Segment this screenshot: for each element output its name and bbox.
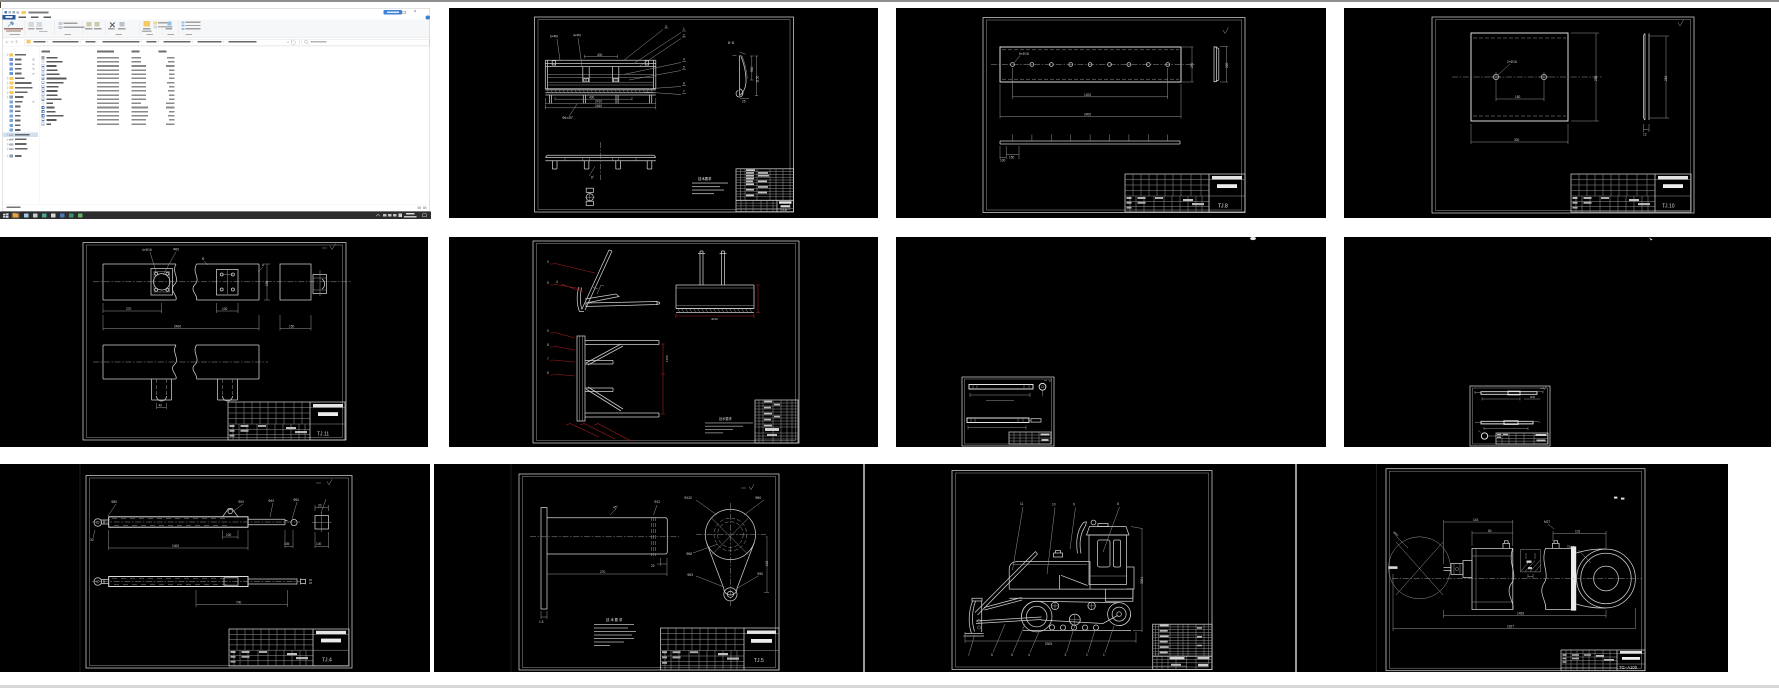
svg-text:3: 3 [547,260,549,264]
svg-text:1150: 1150 [756,76,760,83]
svg-text:1: 1 [683,27,685,31]
svg-text:1000: 1000 [172,544,179,548]
svg-text:Φ50: Φ50 [1392,530,1399,537]
svg-text:20: 20 [318,504,322,508]
svg-text:84: 84 [1488,529,1492,533]
svg-text:Φ40: Φ40 [1530,395,1536,399]
svg-text:2×Φ18: 2×Φ18 [1507,60,1517,64]
svg-text:7: 7 [683,90,685,94]
svg-text:TJ.8: TJ.8 [1218,204,1228,210]
svg-text:270: 270 [600,570,606,574]
svg-text:TJ.4: TJ.4 [322,658,332,664]
svg-text:Φ6×45°: Φ6×45° [562,116,574,120]
svg-text:4: 4 [1028,653,1030,657]
svg-text:4040: 4040 [711,317,718,321]
svg-text:30: 30 [90,538,94,542]
svg-text:1: 1 [1103,653,1105,657]
svg-text:100: 100 [222,307,228,311]
svg-text:5305: 5305 [1045,642,1052,646]
svg-text:6: 6 [683,82,685,86]
svg-text:TJ.10: TJ.10 [1662,204,1675,210]
svg-text:M27: M27 [1544,520,1550,524]
svg-text:150: 150 [1515,95,1521,99]
svg-text:8°: 8° [591,176,595,180]
svg-text:3: 3 [665,25,667,29]
svg-text:9: 9 [1073,503,1075,507]
svg-text:技 术 要 求: 技 术 要 求 [606,617,623,622]
svg-text:700: 700 [236,601,242,605]
svg-text:Φ60: Φ60 [173,248,179,252]
svg-text:1250: 1250 [665,355,669,362]
svg-text:140: 140 [765,560,769,566]
svg-text:100: 100 [226,533,232,537]
svg-text:7: 7 [968,653,970,657]
svg-text:TJ.11: TJ.11 [317,432,329,438]
svg-text:4×Φ16: 4×Φ16 [142,248,152,252]
svg-text:TJ.6: TJ.6 [780,208,787,212]
svg-text:Φ12: Φ12 [654,500,660,504]
svg-text:8: 8 [547,343,549,347]
svg-text:Thed: Thed [1567,545,1574,549]
svg-text:6: 6 [547,371,549,375]
svg-text:7: 7 [547,357,549,361]
svg-text:270: 270 [126,307,132,311]
svg-text:2: 2 [683,34,685,38]
svg-text:100: 100 [1000,159,1006,163]
svg-text:3: 3 [1064,653,1066,657]
svg-text:2410: 2410 [595,100,602,104]
svg-text:220: 220 [1225,62,1229,68]
svg-text:5: 5 [547,281,549,285]
svg-text:2: 2 [1086,653,1088,657]
svg-text:4: 4 [556,280,558,284]
svg-text:105: 105 [284,542,290,546]
svg-text:218: 218 [1664,75,1668,81]
svg-text:2400: 2400 [1084,112,1091,116]
svg-text:400: 400 [597,53,603,57]
svg-text:Φ120: Φ120 [684,496,692,500]
svg-text:技术要求: 技术要求 [719,416,733,421]
svg-text:4: 4 [683,58,685,62]
svg-text:45°: 45° [613,506,619,510]
svg-text:250: 250 [1594,75,1598,81]
svg-text:12: 12 [1643,133,1647,137]
svg-text:2460: 2460 [595,104,602,108]
svg-text:4×Φ9: 4×Φ9 [573,34,581,38]
svg-text:技术要求: 技术要求 [698,176,712,181]
svg-text:510: 510 [750,66,754,72]
svg-text:Φ30: Φ30 [757,572,763,576]
svg-text:3024: 3024 [1140,577,1144,584]
svg-text:8: 8 [1117,502,1119,506]
svg-text:1.5: 1.5 [539,620,544,624]
svg-text:Φ40: Φ40 [268,499,274,503]
svg-text:Φ68: Φ68 [686,552,692,556]
svg-text:6×Φ6: 6×Φ6 [550,35,558,39]
svg-text:1469: 1469 [1517,612,1524,616]
svg-text:9: 9 [547,329,549,333]
svg-text:100: 100 [316,542,322,546]
svg-text:250: 250 [1190,62,1194,68]
svg-text:10: 10 [1052,503,1056,507]
svg-text:143: 143 [1473,518,1479,522]
svg-text:Φ80: Φ80 [111,500,117,504]
svg-text:156: 156 [265,280,269,286]
svg-text:2400: 2400 [174,325,181,329]
svg-text:A: A [262,263,265,267]
svg-text:430: 430 [589,96,595,100]
svg-text:5: 5 [1011,653,1013,657]
svg-text:5: 5 [683,66,685,70]
svg-text:40: 40 [159,404,163,408]
svg-text:TJ.5: TJ.5 [754,658,764,664]
svg-text:150: 150 [289,325,295,329]
svg-text:300: 300 [1514,138,1520,142]
svg-text:Φ60: Φ60 [293,498,299,502]
svg-text:Φ63: Φ63 [687,573,693,577]
svg-text:B−B: B−B [728,41,734,45]
svg-text:6: 6 [991,653,993,657]
svg-text:9×Φ18: 9×Φ18 [1019,52,1029,56]
svg-text:101: 101 [1575,530,1581,534]
svg-text:TG−A100: TG−A100 [1619,665,1638,670]
svg-text:B: B [202,257,204,261]
svg-text:1927: 1927 [1507,625,1514,629]
svg-text:11: 11 [1020,502,1024,506]
svg-text:20: 20 [651,564,655,568]
svg-text:Φ80: Φ80 [755,496,761,500]
svg-text:Φ20: Φ20 [238,500,244,504]
svg-text:25: 25 [742,100,746,104]
svg-text:150: 150 [1009,156,1015,160]
svg-text:1200: 1200 [1084,93,1091,97]
